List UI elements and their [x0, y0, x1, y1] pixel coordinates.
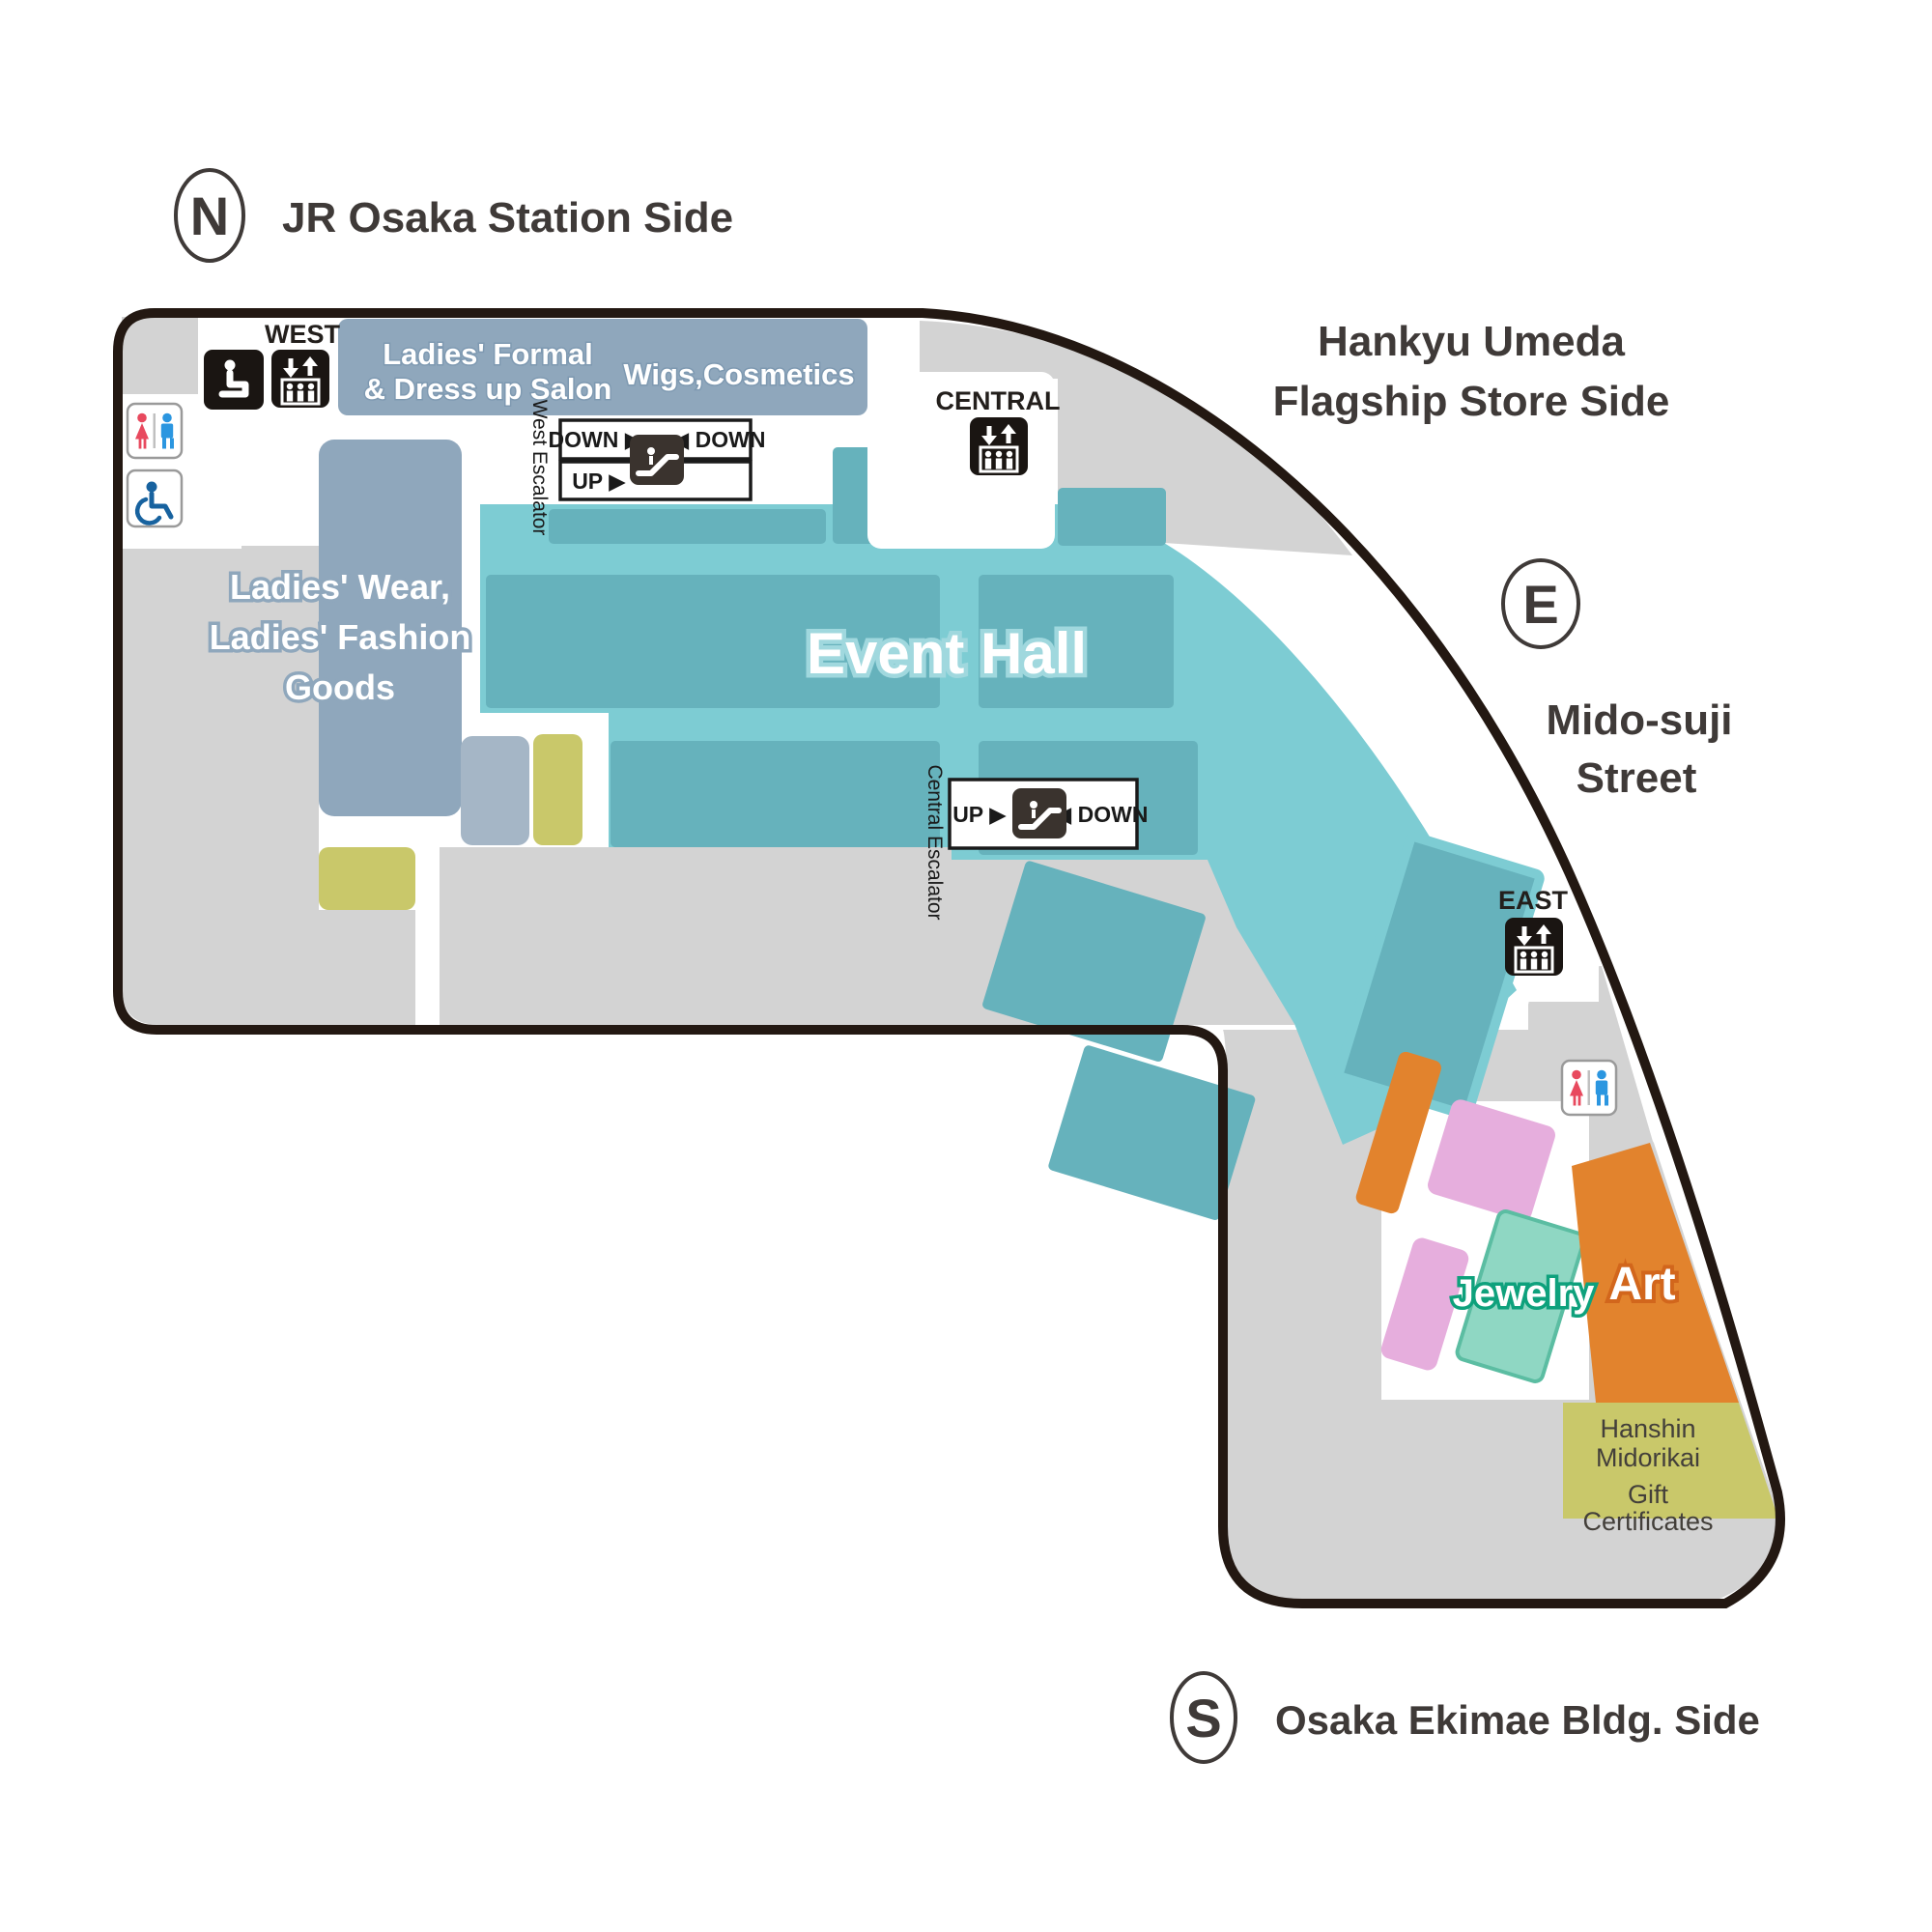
event-hall-label: Event Hall	[807, 621, 1087, 686]
restroom-icon-west	[128, 404, 182, 458]
jewelry-label: Jewelry	[1453, 1272, 1596, 1315]
ladies-formal-label-line1: Ladies' Formal	[383, 337, 593, 371]
ladies-wear-label-line3: Goods	[285, 668, 395, 707]
olive-block-west	[319, 847, 415, 910]
gift-label-line2: Midorikai	[1596, 1443, 1700, 1472]
northeast-label-line1: Hankyu Umeda	[1318, 318, 1625, 365]
east-street-label-line1: Mido-suji	[1546, 696, 1732, 744]
ladies-wear-column-small	[461, 736, 529, 845]
gift-label-line3: Gift	[1628, 1480, 1669, 1509]
art-label: Art	[1608, 1259, 1675, 1310]
east-elevator-label: EAST	[1498, 886, 1569, 915]
central-escalator-down: ◀ DOWN	[1055, 802, 1149, 827]
south-street-label: Osaka Ekimae Bldg. Side	[1275, 1697, 1760, 1743]
ladies-wear-label-line1: Ladies' Wear,	[230, 567, 450, 607]
compass-south-letter: S	[1185, 1688, 1221, 1748]
gift-label-line4: Certificates	[1582, 1507, 1713, 1536]
central-elevator-label: CENTRAL	[936, 386, 1061, 415]
floor-gray-below-olive	[319, 910, 415, 1025]
escalator-icon-west	[630, 435, 684, 485]
west-escalator-up: UP ▶	[572, 469, 626, 494]
compass-north-letter: N	[190, 185, 229, 246]
ladies-wear-label-line2: Ladies' Fashion	[210, 617, 471, 657]
event-hall-block	[611, 741, 940, 847]
compass-east-letter: E	[1522, 574, 1558, 635]
restroom-icon-east	[1562, 1061, 1616, 1115]
compass-east: E	[1503, 560, 1578, 647]
floor-map: WEST CENTRAL EAST West Escalator DOWN ▶ …	[0, 0, 1932, 1932]
compass-south: S	[1172, 1673, 1236, 1762]
event-hall-block	[1058, 488, 1166, 546]
east-elevator-icon	[1505, 918, 1563, 976]
escalator-icon-central	[1012, 788, 1066, 838]
compass-north: N	[176, 170, 243, 261]
gift-label-line1: Hanshin	[1600, 1414, 1695, 1443]
central-elevator-icon	[970, 417, 1028, 475]
floor-map-page: WEST CENTRAL EAST West Escalator DOWN ▶ …	[0, 0, 1932, 1932]
wheelchair-icon	[128, 470, 182, 526]
east-street-label-line2: Street	[1577, 754, 1697, 802]
north-street-label: JR Osaka Station Side	[282, 194, 733, 241]
west-elevator-icon	[271, 350, 329, 408]
northeast-label-line2: Flagship Store Side	[1273, 378, 1670, 425]
central-escalator-up: UP ▶	[952, 802, 1007, 827]
west-elevator-label: WEST	[265, 320, 341, 349]
rest-seat-icon	[204, 350, 264, 410]
wigs-cosmetics-label: Wigs,Cosmetics	[623, 357, 854, 391]
west-escalator-label: West Escalator	[528, 400, 551, 536]
central-escalator-label: Central Escalator	[923, 764, 946, 920]
west-escalator-down-right: DOWN ▶	[549, 427, 642, 452]
olive-block-vertical	[533, 734, 582, 845]
event-hall-block	[549, 509, 826, 544]
west-escalator-down-left: ◀ DOWN	[672, 427, 766, 452]
ladies-formal-label-line2: & Dress up Salon	[364, 372, 612, 406]
